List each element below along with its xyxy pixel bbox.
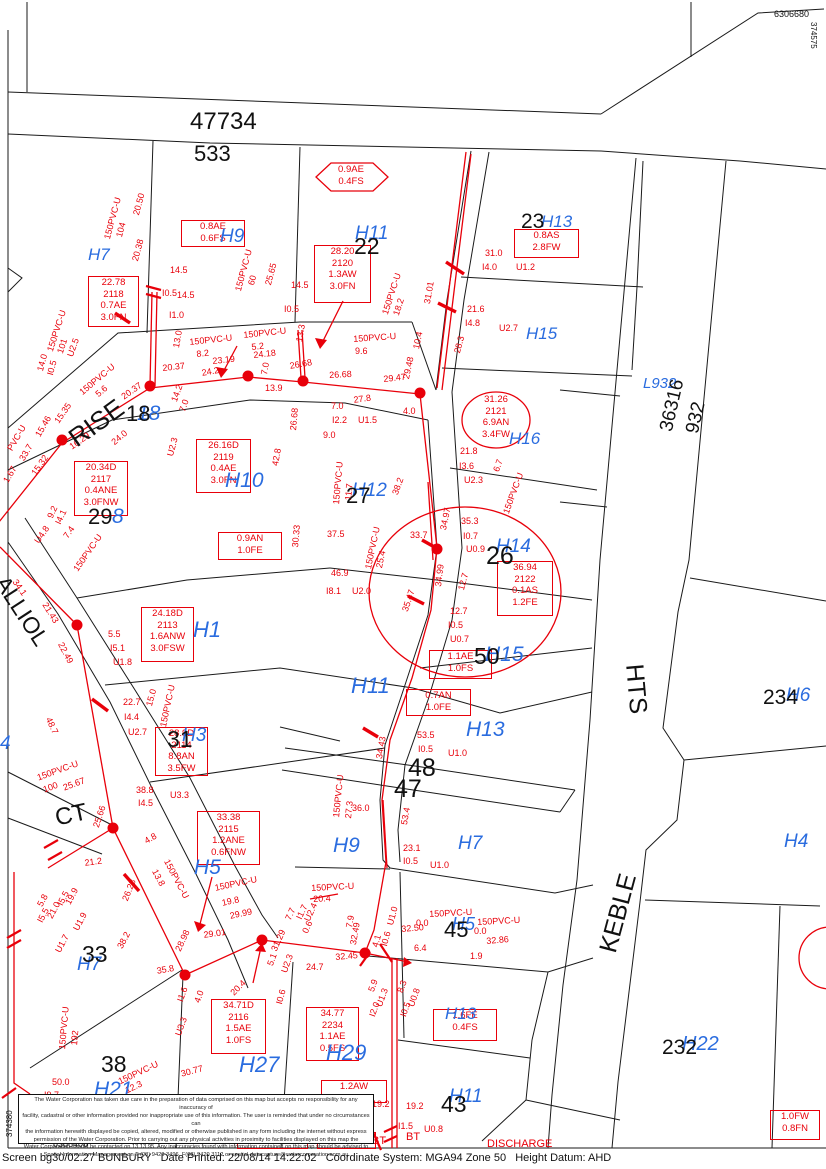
map-label-red: U2.7 bbox=[128, 728, 147, 737]
map-label-red: I0.6 bbox=[380, 930, 393, 947]
map-label-red: I0.6 bbox=[275, 988, 288, 1005]
map-label-black: 43 bbox=[441, 1093, 467, 1116]
map-label-blue: H11 bbox=[351, 675, 390, 697]
map-label-black: 38 bbox=[101, 1053, 127, 1076]
map-label-red: 20.37 bbox=[120, 381, 144, 401]
map-label-red: U0.8 bbox=[424, 1125, 443, 1134]
water-utility-map: 0.9AE0.4FS0.8AE0.6FS22.7821180.7AE3.0FN2… bbox=[0, 0, 826, 1169]
map-label-red: I0.5 bbox=[399, 1001, 413, 1018]
map-label-red: U2.3 bbox=[464, 476, 483, 485]
map-label-red: 13.3 bbox=[295, 324, 307, 343]
map-label-red: 7.0 bbox=[331, 402, 344, 411]
map-label-black: 234 bbox=[763, 687, 798, 708]
map-label-red: 27.8 bbox=[353, 394, 372, 405]
map-label-black: 26 bbox=[486, 544, 514, 569]
map-label-red: 23.1 bbox=[403, 844, 421, 853]
map-label-red: 29.01 bbox=[203, 928, 227, 940]
map-label-red: 8.3 bbox=[396, 979, 409, 994]
map-label-red: 14.5 bbox=[170, 266, 188, 275]
map-label-red: I3.6 bbox=[459, 462, 474, 471]
map-label-red: 10.4 bbox=[412, 331, 424, 350]
map-label-blue: H9 bbox=[220, 227, 244, 246]
map-label-red: 150PVC-U bbox=[159, 684, 177, 728]
map-label-black: 31 bbox=[167, 728, 193, 751]
map-label-black: 932 bbox=[683, 400, 709, 435]
map-label-red: 26.68 bbox=[289, 358, 313, 371]
map-label-red: I0.5 bbox=[162, 289, 177, 298]
map-label-black: HTS bbox=[621, 663, 650, 715]
map-label-red: 32.86 bbox=[486, 935, 509, 946]
map-label-red: U0.7 bbox=[450, 635, 469, 644]
map-label-red: U1.8 bbox=[113, 658, 132, 667]
map-label-blue: H9 bbox=[333, 835, 360, 856]
map-label-red: 26.28 bbox=[121, 878, 138, 902]
map-label-blue: 8 bbox=[112, 506, 124, 527]
map-label-red: 0.0 bbox=[474, 927, 487, 936]
map-label-red: 29.48 bbox=[402, 356, 415, 380]
map-label-red: U4.8 bbox=[33, 524, 51, 545]
map-label-red: U2.0 bbox=[352, 587, 371, 596]
map-label-red: 46.9 bbox=[331, 569, 349, 578]
map-label-red: 20.38 bbox=[131, 238, 146, 262]
map-label-red: U1.0 bbox=[430, 861, 449, 870]
map-label-red: 28.98 bbox=[174, 929, 192, 953]
map-label-blue: H1 bbox=[193, 619, 221, 641]
map-label-black: 50 bbox=[474, 645, 500, 668]
map-label-red: 13.0 bbox=[172, 330, 184, 349]
map-label-red: 25.66 bbox=[92, 805, 108, 829]
map-label-red: 9.6 bbox=[355, 347, 368, 356]
map-label-red: 36.0 bbox=[352, 804, 370, 813]
map-label-red: 6.4 bbox=[414, 944, 427, 953]
map-label-red: I0.5 bbox=[448, 621, 463, 630]
map-label-red: U2.3 bbox=[280, 953, 295, 974]
map-label-blue: 4 bbox=[0, 734, 11, 753]
map-label-red: 20.4 bbox=[229, 979, 248, 998]
map-label-red: 8.2 bbox=[196, 349, 209, 359]
map-label-red: 13.9 bbox=[265, 384, 283, 393]
map-label-blue: H15 bbox=[526, 325, 557, 342]
map-label-red: 34.43 bbox=[375, 736, 388, 760]
map-label-red: I2.0 bbox=[368, 1001, 382, 1018]
map-label-red: U1.0 bbox=[448, 749, 467, 758]
map-label-red: 21.8 bbox=[460, 447, 478, 456]
map-label-red: 20.4 bbox=[313, 894, 331, 904]
map-label-red: 38.2 bbox=[116, 931, 132, 951]
map-label-red: I2.2 bbox=[332, 416, 347, 425]
map-label-blue: H29 bbox=[326, 1042, 366, 1064]
map-label-red: 20.50 bbox=[132, 192, 147, 216]
map-label-red: I4.5 bbox=[138, 799, 153, 808]
map-label-red: 53.4 bbox=[400, 807, 412, 826]
map-label-red: 24.2 bbox=[201, 366, 220, 378]
map-label-red: 150PVC-U bbox=[502, 472, 525, 516]
grid-ref-left: 374380 bbox=[5, 1110, 14, 1137]
map-label-red: I5.1 bbox=[110, 644, 125, 653]
map-label-red: 21.2 bbox=[84, 857, 103, 868]
map-label-red: I1.6 bbox=[176, 986, 190, 1003]
map-label-red: 38.2 bbox=[391, 477, 405, 497]
map-label-red: 150PVC-U bbox=[234, 248, 254, 292]
map-labels-layer: 150PVC-U10420.5020.3814.5I0.514.5I1.0150… bbox=[0, 0, 826, 1169]
map-label-red: U1.9 bbox=[72, 911, 89, 932]
map-label-black: 47734 bbox=[190, 110, 257, 134]
map-label-black: 27 bbox=[346, 485, 370, 507]
map-label-red: 31.01 bbox=[423, 281, 436, 305]
map-label-red: I0.5 bbox=[418, 745, 433, 754]
map-label-red: 0.0 bbox=[416, 919, 429, 928]
map-label-blue: H16 bbox=[509, 430, 540, 447]
map-label-black: 533 bbox=[194, 143, 231, 165]
map-label-red: 7.4 bbox=[62, 525, 77, 540]
map-label-red: 22.7 bbox=[123, 698, 141, 707]
map-label-red: I8.1 bbox=[326, 587, 341, 596]
map-label-blue: H5 bbox=[194, 857, 221, 878]
map-disclaimer: The Water Corporation has taken due care… bbox=[18, 1094, 374, 1144]
disclaimer-line: permission of the Water Corporation. Pri… bbox=[22, 1137, 370, 1145]
map-label-red: I0.5 bbox=[46, 359, 59, 376]
map-label-red: 7.0 bbox=[260, 362, 271, 376]
map-label-blue: H13 bbox=[541, 213, 572, 230]
map-label-red: U3.3 bbox=[170, 791, 189, 800]
map-label-red: U2.7 bbox=[499, 324, 518, 333]
map-label-red: 19.2 bbox=[372, 1100, 390, 1109]
map-label-red: 37.5 bbox=[327, 530, 345, 539]
map-label-blue: H4 bbox=[784, 832, 808, 851]
map-label-red: 53.5 bbox=[417, 731, 435, 740]
map-label-red: 25.4 bbox=[375, 550, 387, 569]
disclaimer-line: The Water Corporation has taken due care… bbox=[22, 1097, 370, 1113]
map-label-black: 47 bbox=[394, 777, 422, 802]
map-label-red: 32.45 bbox=[335, 951, 358, 962]
map-label-red: I0.5 bbox=[403, 857, 418, 866]
map-label-red: 26.68 bbox=[329, 370, 352, 380]
map-label-black: CT bbox=[53, 800, 89, 830]
map-label-red: 23.19 bbox=[212, 355, 235, 366]
map-label-red: 28.3 bbox=[453, 335, 466, 354]
grid-ref-right: 374575 bbox=[809, 22, 818, 49]
map-label-red: 15.46 bbox=[34, 414, 53, 438]
map-label-red: I1.5 bbox=[398, 1122, 413, 1131]
map-label-red: 12.7 bbox=[450, 607, 468, 616]
map-label-red: 24.7 bbox=[306, 963, 324, 972]
map-label-red: 19.8 bbox=[221, 895, 240, 907]
map-label-red: 19.2 bbox=[406, 1102, 424, 1111]
map-label-red: 42.8 bbox=[271, 448, 283, 467]
map-label-red: 32.49 bbox=[349, 922, 362, 946]
map-label-red: 21.6 bbox=[467, 305, 485, 314]
map-label-red: 15.32 bbox=[30, 454, 50, 478]
map-label-red: 24.0 bbox=[110, 429, 129, 447]
map-label-red: 0.6 bbox=[301, 920, 314, 935]
map-label-black: 45 bbox=[444, 919, 468, 941]
map-label-red: 30.77 bbox=[180, 1064, 204, 1079]
map-label-red: I4.8 bbox=[465, 319, 480, 328]
map-label-red: BT bbox=[406, 1132, 420, 1143]
map-label-red: 25.67 bbox=[62, 776, 86, 792]
map-label-red: U1.0 bbox=[386, 906, 400, 927]
map-label-blue: H7 bbox=[88, 246, 110, 263]
map-label-red: 100 bbox=[42, 781, 59, 795]
map-label-red: DISCHARGE bbox=[487, 1139, 552, 1150]
map-label-black: 232 bbox=[662, 1037, 697, 1058]
map-label-red: 4.0 bbox=[193, 989, 206, 1004]
map-label-red: 1.9 bbox=[470, 952, 483, 961]
map-label-red: U1.2 bbox=[516, 263, 535, 272]
map-label-red: 14.5 bbox=[177, 291, 195, 300]
map-label-red: 4.8 bbox=[143, 832, 158, 846]
map-label-red: 31.29 bbox=[270, 928, 287, 952]
map-label-red: 150PVC-U bbox=[243, 327, 287, 340]
map-label-red: 34.99 bbox=[434, 564, 446, 587]
plan-number-top-right: 6306680 bbox=[774, 9, 809, 19]
map-label-blue: H7 bbox=[458, 834, 482, 853]
map-label-red: 29.99 bbox=[229, 907, 253, 920]
map-label-red: 15.0 bbox=[145, 688, 158, 707]
disclaimer-line: the information herewith displayed be co… bbox=[22, 1129, 370, 1137]
map-label-red: 1.67 bbox=[2, 465, 19, 485]
map-label-black: 22 bbox=[354, 235, 380, 258]
map-label-red: 150PVC-U bbox=[72, 533, 104, 573]
map-label-black: KEBLE bbox=[596, 871, 641, 955]
status-bar: Screen bg30/02.27 BUNBURY Date Printed: … bbox=[2, 1152, 611, 1164]
map-label-red: 9.0 bbox=[323, 431, 336, 440]
map-label-red: 25.65 bbox=[264, 262, 279, 286]
map-label-black: 33 bbox=[82, 943, 108, 966]
map-label-red: 26.68 bbox=[289, 408, 300, 431]
map-label-red: 5.5 bbox=[108, 630, 121, 639]
disclaimer-line: facility, cadastral or other information… bbox=[22, 1113, 370, 1129]
map-label-red: 12.7 bbox=[457, 572, 470, 591]
map-label-red: 5.1 bbox=[266, 952, 279, 967]
map-label-red: 192 bbox=[70, 1030, 80, 1046]
map-label-red: I1.0 bbox=[169, 311, 184, 320]
map-label-red: BT bbox=[372, 1136, 386, 1147]
map-label-red: 13.8 bbox=[150, 868, 166, 888]
map-label-red: 104 bbox=[115, 221, 128, 238]
map-label-red: 50.0 bbox=[52, 1078, 70, 1087]
map-label-black: 23 bbox=[521, 211, 544, 232]
map-label-red: 4.0 bbox=[403, 407, 416, 416]
map-label-red: 150PVC-U bbox=[311, 882, 354, 893]
map-label-blue: H13 bbox=[466, 719, 505, 740]
map-label-red: 35.47 bbox=[401, 589, 417, 613]
map-label-red: 34.97 bbox=[439, 507, 452, 531]
map-label-red: U1.5 bbox=[358, 416, 377, 425]
map-label-red: U2.3 bbox=[166, 437, 180, 458]
map-label-red: 6.7 bbox=[492, 458, 505, 473]
map-label-blue: H13 bbox=[445, 1005, 476, 1022]
map-label-blue: H27 bbox=[239, 1054, 279, 1076]
map-label-red: U1.7 bbox=[54, 933, 71, 954]
map-label-blue: H10 bbox=[225, 470, 264, 491]
map-label-red: 20.37 bbox=[162, 362, 185, 373]
map-label-red: 33.7 bbox=[410, 531, 428, 540]
map-label-black: 29 bbox=[88, 506, 112, 528]
map-label-red: 22.49 bbox=[56, 641, 75, 665]
map-label-red: 7.0 bbox=[178, 398, 191, 413]
map-label-red: 31.0 bbox=[485, 249, 503, 258]
map-label-red: 30.33 bbox=[291, 525, 302, 548]
map-label-red: 35.3 bbox=[461, 517, 479, 526]
map-label-red: 38.8 bbox=[136, 786, 154, 795]
map-label-red: 150PVC-U bbox=[189, 334, 233, 347]
map-label-red: U0.9 bbox=[466, 545, 485, 554]
map-label-red: 60 bbox=[247, 274, 258, 286]
map-label-black: 18 bbox=[126, 403, 150, 425]
map-label-red: U3.3 bbox=[174, 1016, 189, 1037]
map-label-red: I4.4 bbox=[124, 713, 139, 722]
map-label-red: 24.18 bbox=[253, 349, 276, 360]
map-label-red: 48.7 bbox=[44, 716, 60, 736]
map-label-red: I0.7 bbox=[463, 532, 478, 541]
map-label-red: I0.5 bbox=[284, 305, 299, 314]
map-label-red: 150PVC-U bbox=[353, 332, 397, 344]
map-label-red: I4.0 bbox=[482, 263, 497, 272]
map-label-red: 33.7 bbox=[18, 443, 35, 463]
map-label-red: 14.5 bbox=[291, 281, 309, 290]
map-label-red: 35.8 bbox=[156, 964, 175, 976]
map-label-red: 150PVC-U bbox=[162, 858, 190, 900]
